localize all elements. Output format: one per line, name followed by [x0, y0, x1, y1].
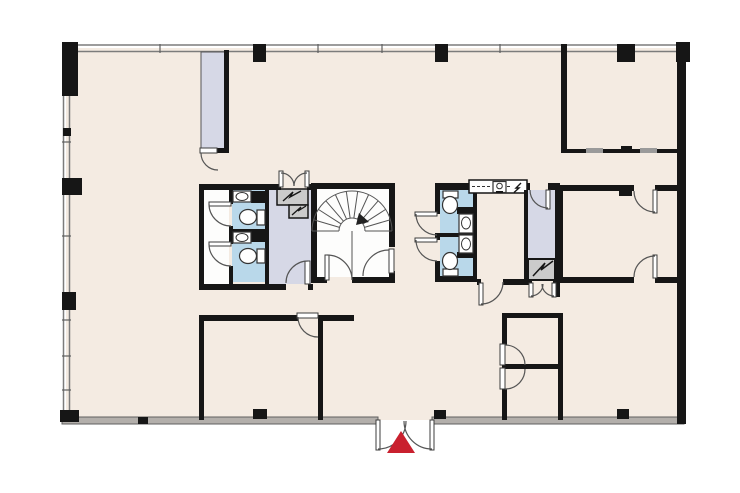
door-leaf [500, 368, 505, 389]
br-right-wall [558, 313, 563, 420]
electrical-box [277, 189, 308, 205]
column [63, 128, 71, 136]
column [619, 185, 632, 196]
mr-bottom-wall [558, 277, 634, 283]
stair-top-wall [311, 183, 395, 189]
column [435, 44, 448, 62]
sink-basin [462, 238, 471, 250]
bl-top-wall [318, 315, 354, 321]
mr-left-wall [558, 185, 563, 283]
mr-bottom-wall [655, 277, 677, 283]
column [138, 417, 148, 424]
sliding-door-mark [640, 148, 657, 153]
br-top-wall [502, 313, 563, 318]
column [676, 42, 690, 62]
left-bath-wall [229, 266, 233, 284]
entrance-marker-triangle [387, 431, 415, 453]
column [62, 178, 82, 195]
door-leaf [653, 255, 657, 278]
stair-right-wall [389, 183, 395, 247]
tr-bottom-wall [561, 149, 679, 153]
toilet-tank [257, 249, 265, 263]
tl-shaft-wall-bottom [216, 148, 229, 153]
door-leaf [552, 283, 556, 297]
bottom-exterior-wall-left [62, 417, 378, 424]
lc-left-wall [199, 184, 204, 290]
door-leaf [325, 255, 329, 280]
lc-bottom-wall [308, 284, 313, 290]
stair-bottom-wall [352, 277, 395, 283]
door-leaf [389, 249, 394, 273]
sink-basin [236, 193, 248, 201]
right-exterior-wall [677, 42, 686, 424]
door-leaf [209, 242, 231, 246]
toilet-tank [257, 210, 265, 225]
stair-left-wall [311, 183, 317, 283]
stove-icon [496, 191, 503, 194]
bl-right-wall [318, 315, 323, 420]
right-bath-chase [457, 207, 473, 214]
right-bath-bottom-wall [435, 276, 477, 282]
bl-left-wall [199, 315, 204, 420]
tl-shaft-wall-right [224, 50, 229, 152]
left-bath-chase [251, 191, 265, 203]
br-divider-wall [502, 364, 563, 369]
entrance-door-leaf [376, 420, 380, 450]
door-leaf [209, 202, 231, 206]
column [434, 410, 446, 419]
sliding-door-mark [586, 148, 603, 153]
toilet-bowl [443, 253, 458, 270]
br-left-wall [502, 389, 507, 420]
sink-basin [236, 234, 248, 242]
door-leaf [529, 283, 533, 297]
sink-basin [462, 217, 471, 229]
column [253, 44, 266, 62]
door-leaf [305, 261, 310, 284]
column [253, 409, 267, 419]
door-leaf [415, 212, 437, 216]
toilet-bowl [443, 197, 458, 214]
column [62, 42, 78, 96]
column [60, 410, 79, 422]
door-leaf [500, 344, 505, 365]
door-leaf [653, 190, 657, 213]
br-left-wall [502, 313, 507, 345]
lc-bottom-wall [199, 284, 286, 290]
tr-wall-tick [621, 146, 632, 153]
column [617, 409, 629, 419]
lc-top-wall [199, 184, 281, 190]
kitchen-shaft-wall [524, 190, 528, 280]
rc-shaft-floor [528, 190, 555, 262]
right-bath-wall [435, 183, 440, 214]
door-leaf [297, 313, 318, 318]
toilet-bowl [240, 210, 257, 225]
floorplan-svg [0, 0, 740, 493]
tr-left-wall [561, 44, 567, 152]
floorplan [0, 0, 740, 493]
tl-shaft-floor [201, 52, 227, 150]
left-bath-wall [229, 226, 233, 244]
door-leaf [415, 238, 437, 242]
door-leaf [200, 148, 217, 153]
mr-top-wall [655, 185, 677, 191]
column [617, 44, 635, 62]
door-leaf [479, 283, 483, 305]
left-bath-chase [251, 231, 265, 242]
door-leaf [546, 190, 550, 209]
bl-top-wall [199, 315, 298, 321]
left-bath-wall [265, 190, 269, 284]
toilet-bowl [240, 249, 257, 264]
entrance-door-leaf [430, 420, 434, 450]
column [62, 292, 76, 310]
